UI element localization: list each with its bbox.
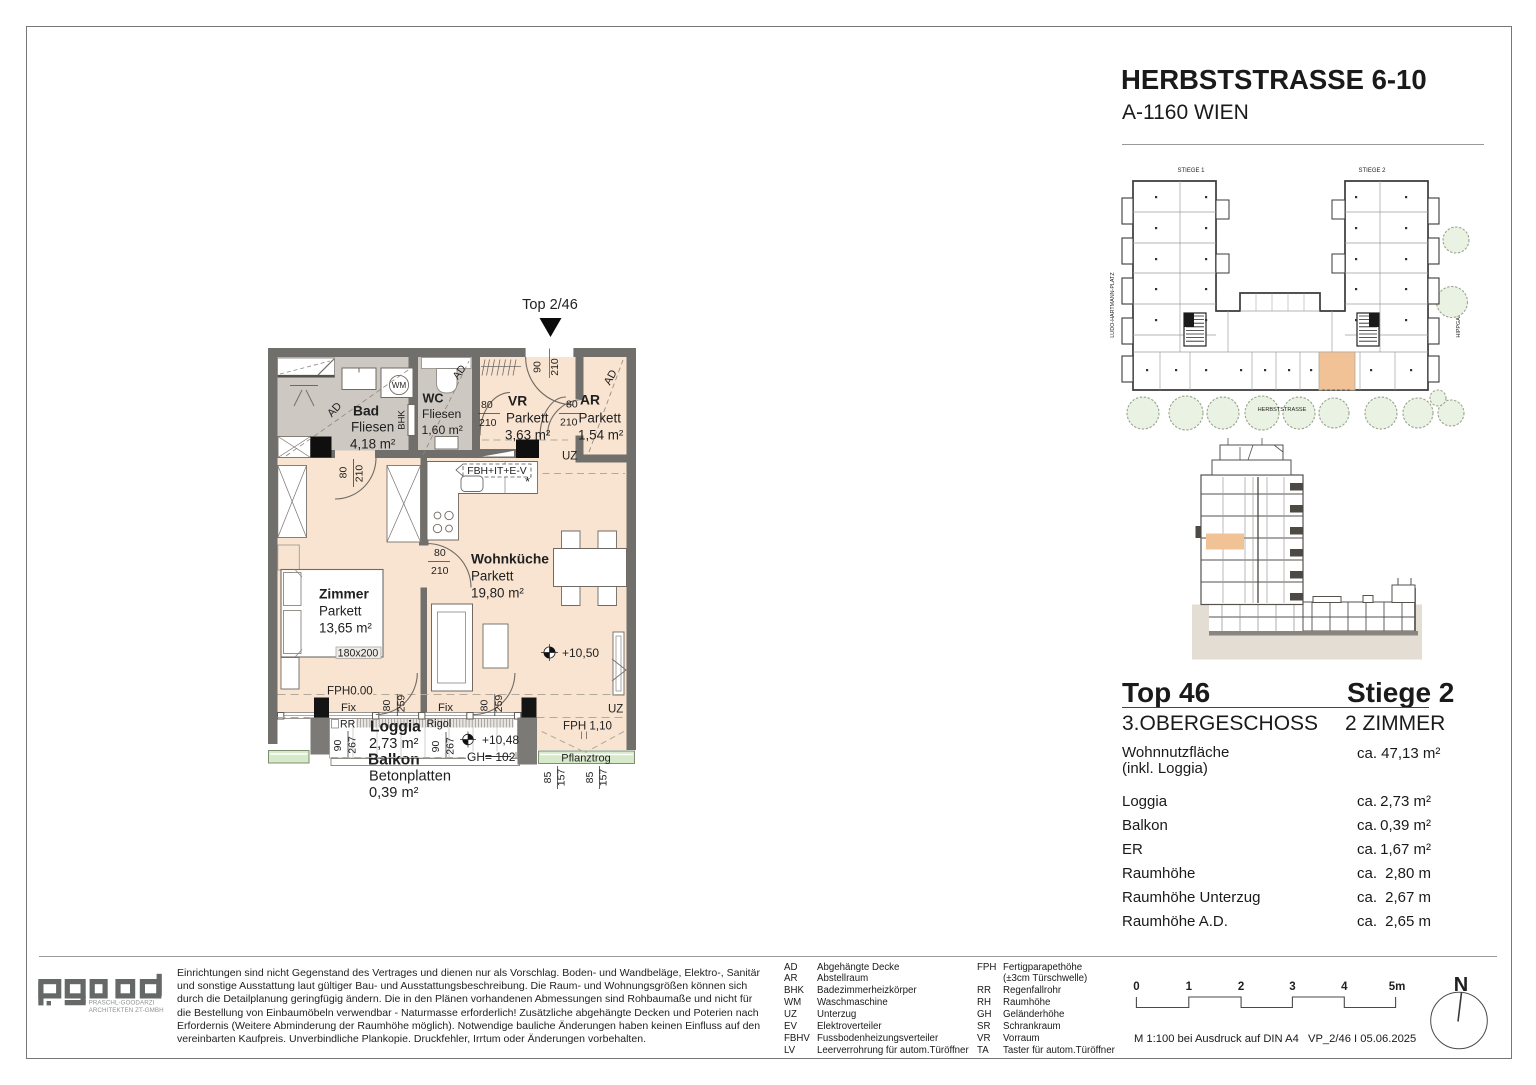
- svg-text:+10,50: +10,50: [562, 646, 599, 660]
- svg-text:1,54 m²: 1,54 m²: [578, 428, 624, 443]
- svg-text:RR: RR: [340, 719, 356, 731]
- svg-text:FPH 1,10: FPH 1,10: [563, 720, 612, 733]
- svg-text:0: 0: [1133, 981, 1139, 993]
- svg-text:2: 2: [1238, 981, 1244, 993]
- svg-text:85: 85: [542, 772, 554, 784]
- svg-text:157: 157: [556, 769, 568, 787]
- svg-text:5m: 5m: [1389, 981, 1406, 993]
- svg-text:FPH0.00: FPH0.00: [327, 685, 373, 698]
- svg-text:19,80 m²: 19,80 m²: [471, 586, 524, 601]
- svg-text:+10,48: +10,48: [482, 733, 519, 747]
- svg-text:13,65 m²: 13,65 m²: [319, 621, 372, 636]
- svg-text:Loggia: Loggia: [370, 719, 421, 736]
- svg-text:Fliesen: Fliesen: [422, 407, 461, 421]
- svg-text:Parkett: Parkett: [506, 411, 549, 426]
- svg-text:210: 210: [549, 358, 561, 376]
- svg-text:80: 80: [481, 399, 493, 411]
- svg-text:LUDO-HARTMANN-PLATZ: LUDO-HARTMANN-PLATZ: [1110, 272, 1116, 338]
- svg-text:90: 90: [430, 741, 442, 753]
- svg-text:GH= 102: GH= 102: [467, 750, 516, 764]
- svg-text:Parkett: Parkett: [579, 411, 622, 426]
- svg-text:Parkett: Parkett: [319, 604, 362, 619]
- svg-text:Fliesen: Fliesen: [351, 420, 394, 435]
- svg-text:2,73 m²: 2,73 m²: [369, 736, 419, 752]
- svg-text:*: *: [525, 474, 530, 489]
- svg-text:PRASCHL-GOODARZI: PRASCHL-GOODARZI: [89, 1000, 155, 1007]
- svg-text:VR: VR: [508, 394, 527, 409]
- svg-text:WM: WM: [392, 381, 407, 390]
- svg-text:AR: AR: [580, 393, 600, 408]
- svg-text:Zimmer: Zimmer: [319, 587, 369, 602]
- svg-text:210: 210: [479, 417, 497, 429]
- svg-text:Betonplatten: Betonplatten: [369, 769, 451, 785]
- svg-text:0,39 m²: 0,39 m²: [369, 785, 419, 801]
- svg-text:WC: WC: [423, 392, 444, 406]
- svg-text:ARCHITEKTEN ZT-GMBH: ARCHITEKTEN ZT-GMBH: [89, 1007, 164, 1014]
- svg-text:80: 80: [338, 467, 350, 479]
- svg-text:UZ: UZ: [608, 704, 623, 716]
- svg-text:210: 210: [354, 465, 366, 483]
- svg-text:80: 80: [566, 399, 578, 411]
- svg-text:90: 90: [332, 740, 344, 752]
- svg-text:4,18 m²: 4,18 m²: [350, 437, 396, 452]
- svg-text:Bad: Bad: [353, 404, 379, 419]
- svg-text:267: 267: [347, 736, 359, 754]
- svg-text:90: 90: [532, 361, 544, 373]
- svg-text:Pflanztrog: Pflanztrog: [561, 753, 611, 765]
- svg-text:1,60 m²: 1,60 m²: [422, 423, 463, 437]
- svg-text:210: 210: [560, 417, 578, 429]
- svg-text:UZ: UZ: [562, 451, 577, 463]
- svg-text:259: 259: [396, 695, 408, 713]
- svg-text:4: 4: [1341, 981, 1348, 993]
- svg-text:Fix: Fix: [341, 702, 356, 714]
- svg-text:Top 2/46: Top 2/46: [522, 297, 578, 313]
- svg-text:Rigol: Rigol: [427, 718, 452, 730]
- svg-text:80: 80: [381, 700, 393, 712]
- svg-text:N: N: [1454, 974, 1468, 996]
- svg-text:157: 157: [598, 769, 610, 787]
- svg-text:3: 3: [1289, 981, 1295, 993]
- svg-text:80: 80: [434, 547, 446, 559]
- svg-text:1: 1: [1186, 981, 1193, 993]
- svg-text:Wohnküche: Wohnküche: [471, 552, 549, 567]
- svg-text:80: 80: [479, 700, 491, 712]
- svg-text:Fix: Fix: [438, 702, 453, 714]
- svg-text:STIEGE 1: STIEGE 1: [1177, 168, 1205, 174]
- svg-text:259: 259: [493, 695, 505, 713]
- svg-text:180x200: 180x200: [338, 648, 379, 660]
- svg-text:Balkon: Balkon: [368, 752, 420, 769]
- svg-text:Parkett: Parkett: [471, 569, 514, 584]
- svg-text:210: 210: [431, 565, 449, 577]
- svg-text:85: 85: [584, 772, 596, 784]
- svg-text:BHK: BHK: [397, 410, 408, 430]
- svg-text:267: 267: [445, 737, 457, 755]
- svg-text:HERBSTSTRASSE: HERBSTSTRASSE: [1258, 407, 1307, 413]
- svg-text:STIEGE 2: STIEGE 2: [1358, 168, 1386, 174]
